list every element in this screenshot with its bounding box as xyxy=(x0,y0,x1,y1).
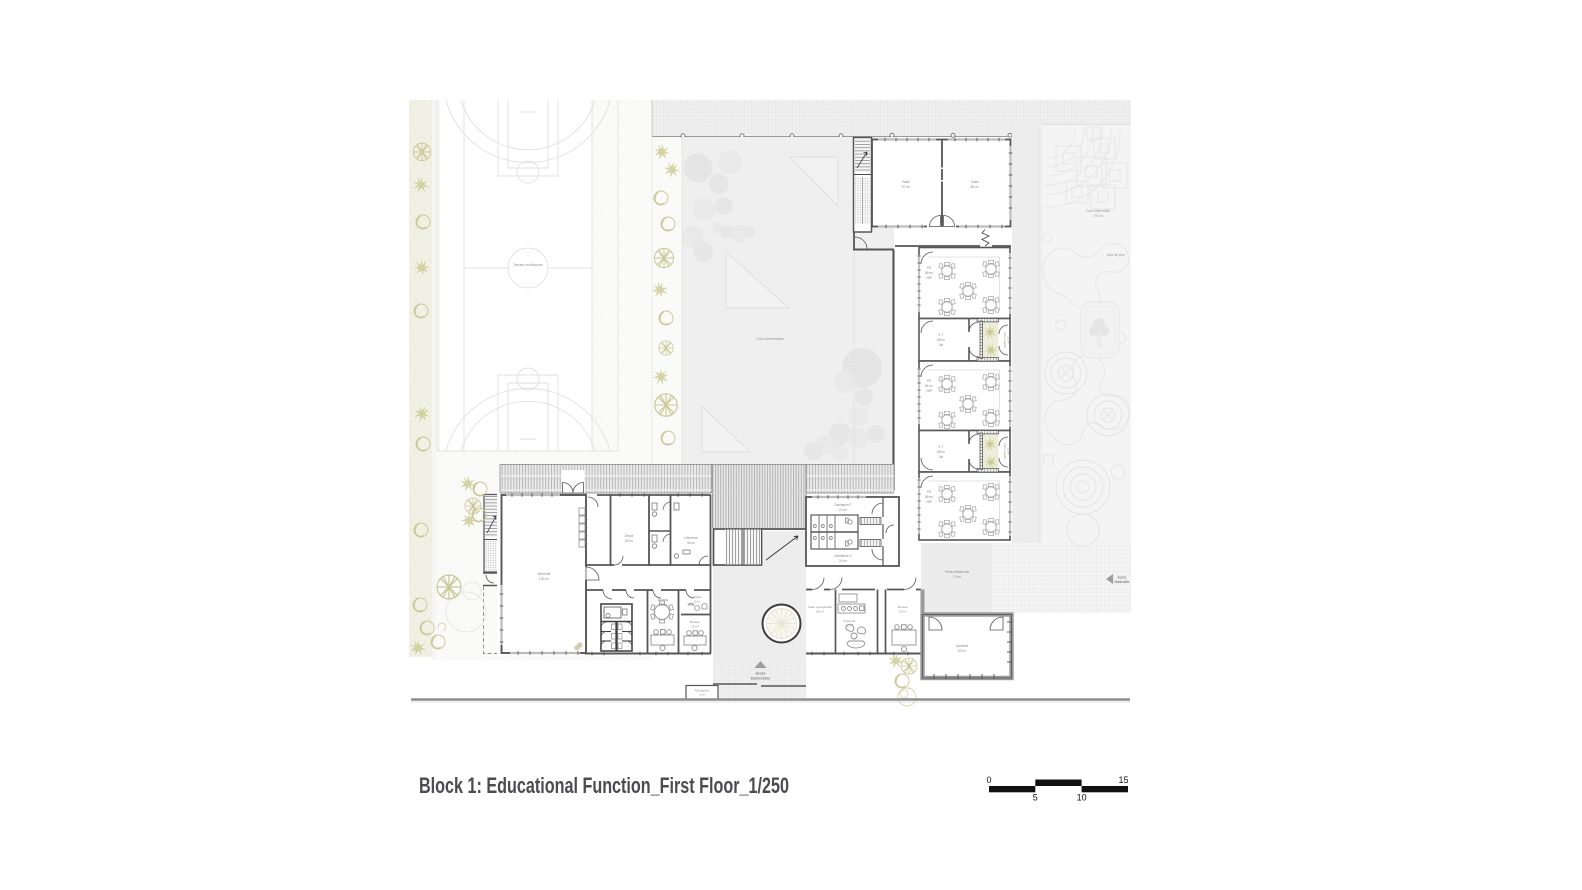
svg-text:Aide gardien: Aide gardien xyxy=(695,689,710,693)
svg-text:24 m²: 24 m² xyxy=(899,610,907,614)
svg-text:E.T: E.T xyxy=(939,333,944,337)
svg-text:Terrain multisports: Terrain multisports xyxy=(513,263,543,267)
svg-text:778 m²: 778 m² xyxy=(1093,214,1104,218)
svg-text:Sanitaires H: Sanitaires H xyxy=(834,554,852,558)
svg-text:24 m²: 24 m² xyxy=(839,559,847,563)
svg-text:Accès: Accès xyxy=(1118,576,1127,580)
svg-text:28 m²: 28 m² xyxy=(937,338,945,342)
svg-text:Salle: Salle xyxy=(971,180,979,184)
svg-text:33 m²: 33 m² xyxy=(845,624,853,628)
svg-text:P5: P5 xyxy=(927,266,931,270)
svg-text:28P: 28P xyxy=(926,276,932,280)
svg-text:Cour Maternelle: Cour Maternelle xyxy=(1086,209,1110,213)
svg-text:Infirmerie: Infirmerie xyxy=(684,536,698,540)
svg-text:86 m²: 86 m² xyxy=(925,384,933,388)
svg-text:86 m²: 86 m² xyxy=(925,271,933,275)
svg-text:28 m²: 28 m² xyxy=(937,450,945,454)
svg-text:P5: P5 xyxy=(927,379,931,383)
svg-text:15: 15 xyxy=(1118,775,1128,785)
svg-text:Atelier: Atelier xyxy=(693,595,702,599)
svg-text:Garderie: Garderie xyxy=(956,644,969,648)
svg-text:E.T: E.T xyxy=(939,445,944,449)
svg-text:63 m²: 63 m² xyxy=(958,649,966,653)
svg-text:Cour élémentaire: Cour élémentaire xyxy=(756,337,784,341)
svg-text:5 m²: 5 m² xyxy=(699,693,704,697)
svg-text:Salle: Salle xyxy=(902,180,910,184)
svg-text:12 m²: 12 m² xyxy=(1007,448,1011,455)
svg-text:24 m²: 24 m² xyxy=(839,508,847,512)
svg-text:130 m²: 130 m² xyxy=(539,577,550,581)
svg-text:Bureau: Bureau xyxy=(658,598,669,602)
svg-text:22 m²: 22 m² xyxy=(659,603,667,607)
svg-text:57 m²: 57 m² xyxy=(902,185,912,189)
svg-text:Préau Maternelle: Préau Maternelle xyxy=(945,570,970,574)
svg-text:Patio végétal: Patio végétal xyxy=(1003,443,1007,459)
svg-text:18 m²: 18 m² xyxy=(816,610,824,614)
svg-text:26 m²: 26 m² xyxy=(625,539,633,543)
svg-text:Sanitaires F: Sanitaires F xyxy=(834,503,851,507)
svg-text:70 m²: 70 m² xyxy=(953,575,961,579)
svg-text:Tisanerie: Tisanerie xyxy=(843,619,856,623)
svg-text:Patio végétal: Patio végétal xyxy=(1003,332,1007,348)
svg-text:8 m²: 8 m² xyxy=(694,600,700,604)
svg-text:28P: 28P xyxy=(926,500,932,504)
svg-text:1at: 1at xyxy=(939,343,944,347)
svg-text:Aire de jeux: Aire de jeux xyxy=(1107,253,1125,257)
svg-text:Elémentaire: Elémentaire xyxy=(751,677,770,681)
svg-text:28P: 28P xyxy=(926,389,932,393)
svg-text:12 m²: 12 m² xyxy=(1007,337,1011,344)
svg-text:Bureau: Bureau xyxy=(898,605,908,609)
svg-text:Bureau: Bureau xyxy=(690,620,700,624)
svg-text:1at: 1at xyxy=(939,455,944,459)
svg-text:0: 0 xyxy=(987,775,992,785)
svg-text:56 m²: 56 m² xyxy=(971,185,981,189)
svg-text:10: 10 xyxy=(1077,793,1087,803)
svg-text:5: 5 xyxy=(1033,793,1038,803)
svg-text:Block 1: Educational Function_: Block 1: Educational Function_First Floo… xyxy=(419,773,789,798)
svg-text:86 m²: 86 m² xyxy=(925,495,933,499)
svg-text:14 m²: 14 m² xyxy=(691,625,699,629)
svg-text:Motricité: Motricité xyxy=(538,572,551,576)
svg-text:Maternelle: Maternelle xyxy=(1115,580,1130,584)
svg-text:Dépôt: Dépôt xyxy=(625,534,634,538)
svg-text:46 m²: 46 m² xyxy=(687,541,695,545)
svg-text:Salle enseignants: Salle enseignants xyxy=(808,605,832,609)
svg-text:P5: P5 xyxy=(927,490,931,494)
svg-text:Accès: Accès xyxy=(756,672,766,676)
